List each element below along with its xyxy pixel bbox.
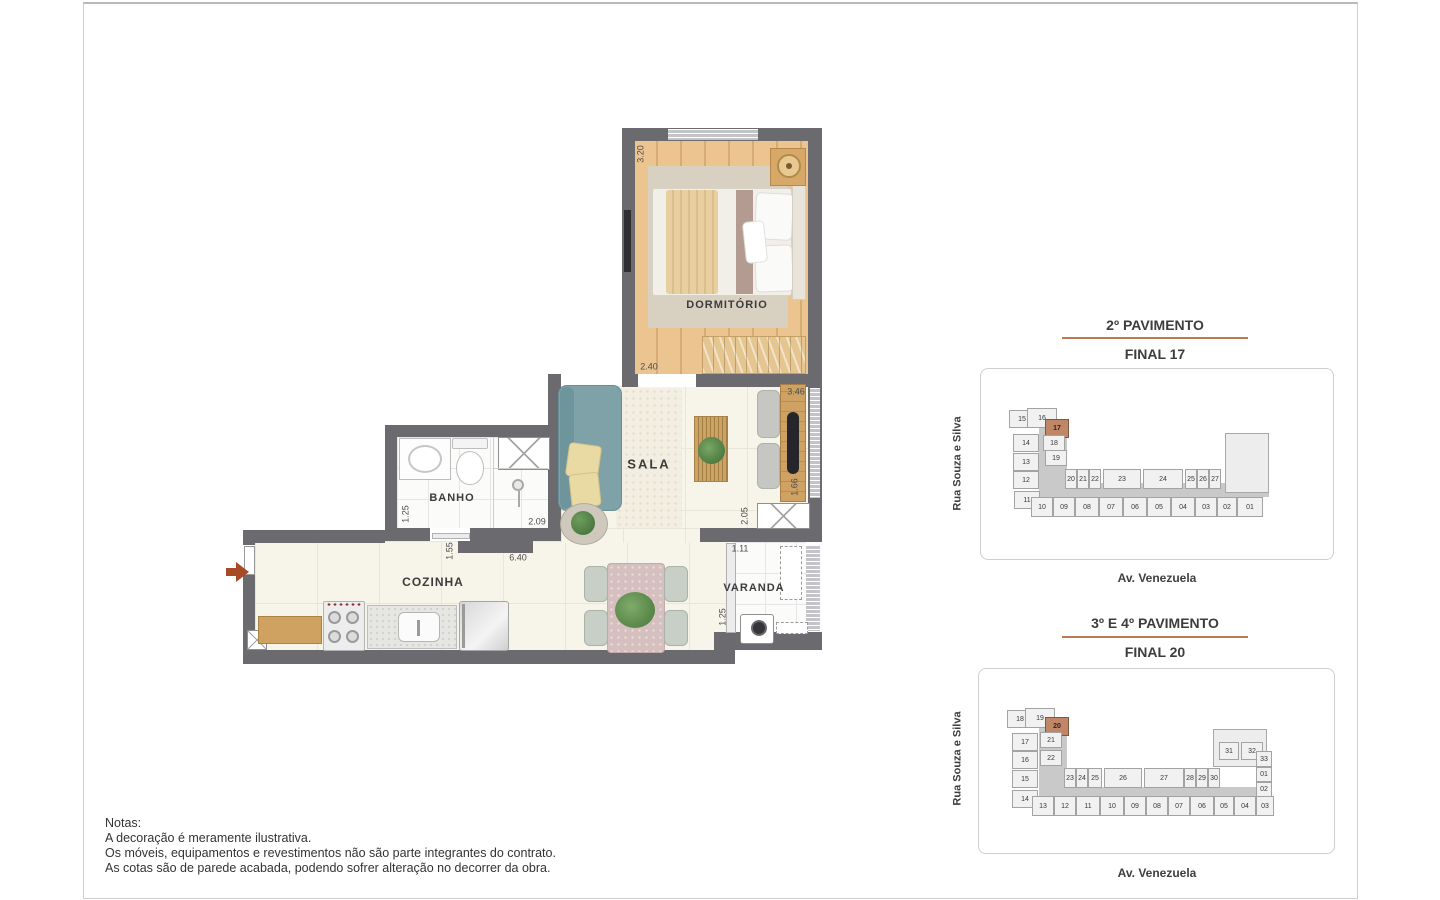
dim-cozinha-width: 6.40 bbox=[503, 553, 533, 564]
unit-cell-13: 13 bbox=[1032, 796, 1054, 816]
dining-chair bbox=[584, 566, 608, 602]
dim-sala-right-top: 3.46 bbox=[781, 387, 811, 398]
unit-cell-04: 04 bbox=[1171, 497, 1195, 517]
kitchen-bench bbox=[258, 616, 322, 644]
unit-cell-06: 06 bbox=[1190, 796, 1214, 816]
wall-kitchen-top bbox=[243, 530, 385, 543]
unit-cell-08: 08 bbox=[1075, 497, 1099, 517]
sala-right-window bbox=[810, 388, 820, 498]
stove-knobs bbox=[326, 602, 362, 607]
unit-cell-03: 03 bbox=[1195, 497, 1217, 517]
unit-cell-21: 21 bbox=[1077, 469, 1089, 489]
dim-banho-bottom: 2.09 bbox=[522, 517, 552, 528]
banho-divider bbox=[494, 468, 548, 469]
unit-cell-05: 05 bbox=[1214, 796, 1234, 816]
unit-cell-22: 22 bbox=[1089, 469, 1101, 489]
room-label-dormitorio: DORMITÓRIO bbox=[686, 299, 768, 311]
unit-cell-06: 06 bbox=[1123, 497, 1147, 517]
entrance-arrow-icon bbox=[224, 561, 250, 583]
unit-cell-17: 17 bbox=[1012, 733, 1038, 751]
street-label-rua-souza: Rua Souza e Silva bbox=[952, 699, 965, 819]
dim-dorm-left: 3.20 bbox=[636, 139, 647, 169]
plant-icon bbox=[571, 511, 595, 535]
shaft-banho bbox=[498, 437, 550, 470]
floor-cushion bbox=[757, 390, 780, 438]
lamp-center bbox=[786, 163, 792, 169]
unit-cell-07: 07 bbox=[1168, 796, 1190, 816]
building-footprint: 1819201721162215142324252627282930313233… bbox=[979, 669, 1334, 853]
wall-under-shower bbox=[458, 541, 533, 553]
unit-cell-16: 16 bbox=[1012, 751, 1038, 769]
dim-hall: 1.55 bbox=[445, 536, 456, 566]
headboard bbox=[792, 185, 806, 300]
unit-cell-23: 23 bbox=[1103, 469, 1141, 489]
unit-cell-13: 13 bbox=[1013, 453, 1039, 471]
room-label-varanda: VARANDA bbox=[723, 582, 784, 594]
unit-cell-11: 11 bbox=[1076, 796, 1100, 816]
shower-icon bbox=[512, 479, 524, 491]
room-label-banho: BANHO bbox=[429, 492, 474, 504]
dim-varanda-left: 1.25 bbox=[718, 602, 729, 632]
street-label-av-venezuela: Av. Venezuela bbox=[1057, 866, 1257, 880]
notes-line: Os móveis, equipamentos e revestimentos … bbox=[105, 846, 556, 861]
washer-door-icon bbox=[751, 620, 767, 636]
floor-plan-sheet: DORMITÓRIO SALA BANHO COZINHA VARANDA 3.… bbox=[0, 0, 1440, 900]
unit-cell-09: 09 bbox=[1124, 796, 1146, 816]
shower-arm bbox=[518, 491, 520, 507]
key-plan-final: FINAL 17 bbox=[1020, 346, 1290, 362]
unit-cell-20: 20 bbox=[1065, 469, 1077, 489]
street-label-av-venezuela: Av. Venezuela bbox=[1057, 571, 1257, 585]
notes-heading: Notas: bbox=[105, 816, 556, 831]
unit-cell-10: 10 bbox=[1100, 796, 1124, 816]
burner-icon bbox=[328, 630, 341, 643]
shaft-sala bbox=[757, 503, 810, 529]
dorm-window bbox=[668, 129, 758, 140]
wall-banho-top bbox=[385, 425, 561, 437]
toilet-tank bbox=[452, 438, 488, 449]
toilet-icon bbox=[456, 451, 484, 485]
faucet-icon bbox=[417, 620, 420, 636]
unit-cell-23: 23 bbox=[1064, 768, 1076, 788]
unit-cell-25: 25 bbox=[1088, 768, 1102, 788]
wall-banho-bottom bbox=[385, 528, 561, 541]
key-plan-title: 3º E 4º PAVIMENTO bbox=[1020, 615, 1290, 631]
unit-cell-29: 29 bbox=[1196, 768, 1208, 788]
fridge-handle bbox=[462, 604, 465, 648]
bed-cushion bbox=[742, 220, 768, 264]
plant-icon bbox=[615, 592, 655, 628]
unit-cell-30: 30 bbox=[1208, 768, 1220, 788]
unit-cell-04: 04 bbox=[1234, 796, 1256, 816]
unit-cell-21: 21 bbox=[1040, 732, 1062, 748]
unit-cell-12: 12 bbox=[1054, 796, 1076, 816]
unit-cell-26: 26 bbox=[1104, 768, 1142, 788]
key-plan-final: FINAL 20 bbox=[1020, 644, 1290, 660]
key-plan-box: 1819201721162215142324252627282930313233… bbox=[978, 668, 1335, 854]
key-plan-title: 2º PAVIMENTO bbox=[1020, 317, 1290, 333]
unit-cell-02: 02 bbox=[1256, 782, 1272, 797]
varanda-dashes bbox=[776, 622, 808, 634]
dining-chair bbox=[584, 610, 608, 646]
unit-cell-01: 01 bbox=[1237, 497, 1263, 517]
dining-chair bbox=[664, 610, 688, 646]
dorm-left-window bbox=[624, 210, 631, 272]
unit-cell-09: 09 bbox=[1053, 497, 1075, 517]
unit-cell-27: 27 bbox=[1144, 768, 1184, 788]
room-label-sala: SALA bbox=[627, 457, 670, 472]
burner-icon bbox=[328, 611, 341, 624]
floor-cushion bbox=[757, 443, 780, 489]
wall-banho-left bbox=[385, 425, 397, 540]
unit-cell-10: 10 bbox=[1031, 497, 1053, 517]
fridge bbox=[459, 601, 509, 651]
unit-cell-24: 24 bbox=[1143, 469, 1183, 489]
unit-cell-31: 31 bbox=[1219, 742, 1239, 760]
dim-sala-right-bottom: 2.05 bbox=[740, 501, 751, 531]
title-rule bbox=[1062, 337, 1248, 339]
unit-cell-12: 12 bbox=[1013, 471, 1039, 489]
unit-cell-14: 14 bbox=[1013, 434, 1039, 452]
dim-tv-wall: 1.66 bbox=[790, 472, 801, 502]
notes-line: A decoração é meramente ilustrativa. bbox=[105, 831, 556, 846]
unit-cell-03: 03 bbox=[1256, 796, 1274, 816]
wall-sala-varanda bbox=[700, 528, 822, 542]
unit-cell-33: 33 bbox=[1256, 751, 1272, 767]
plant-icon bbox=[698, 437, 725, 464]
unit-cell-01: 01 bbox=[1256, 767, 1272, 782]
dim-varanda-top: 1.11 bbox=[725, 544, 755, 555]
room-label-cozinha: COZINHA bbox=[402, 575, 464, 589]
banho-divider bbox=[493, 437, 494, 528]
unit-cell-08: 08 bbox=[1146, 796, 1168, 816]
unit-cell-05: 05 bbox=[1147, 497, 1171, 517]
unit-cell-15: 15 bbox=[1012, 770, 1038, 788]
building-footprint: 1516171418131912112021222324252627100908… bbox=[981, 369, 1333, 559]
unit-cell-07: 07 bbox=[1099, 497, 1123, 517]
stove bbox=[323, 601, 365, 651]
unit-cell-24: 24 bbox=[1076, 768, 1088, 788]
unit-cell-27: 27 bbox=[1209, 469, 1221, 489]
title-rule bbox=[1062, 636, 1248, 638]
unit-cell-28: 28 bbox=[1184, 768, 1196, 788]
burner-icon bbox=[346, 630, 359, 643]
unit-cell-25: 25 bbox=[1185, 469, 1197, 489]
unit-cell-26: 26 bbox=[1197, 469, 1209, 489]
dorm-door-opening bbox=[638, 374, 696, 387]
unit-cell-02: 02 bbox=[1217, 497, 1237, 517]
dim-banho-left: 1.25 bbox=[401, 499, 412, 529]
washbasin-icon bbox=[408, 445, 442, 473]
burner-icon bbox=[346, 611, 359, 624]
bed-blanket bbox=[666, 190, 718, 294]
notes-block: Notas: A decoração é meramente ilustrati… bbox=[105, 816, 556, 876]
unit-cell-18: 18 bbox=[1043, 435, 1065, 451]
key-plan-box: 1516171418131912112021222324252627100908… bbox=[980, 368, 1334, 560]
wardrobe bbox=[702, 336, 806, 374]
unit-cell-19: 19 bbox=[1045, 450, 1067, 466]
varanda-window bbox=[806, 545, 820, 631]
tower-block bbox=[1225, 433, 1269, 493]
street-label-rua-souza: Rua Souza e Silva bbox=[952, 404, 965, 524]
unit-cell-22: 22 bbox=[1040, 750, 1062, 766]
notes-line: As cotas são de parede acabada, podendo … bbox=[105, 861, 556, 876]
dining-chair bbox=[664, 566, 688, 602]
tv-icon bbox=[787, 412, 799, 474]
dim-dorm-bottom: 2.40 bbox=[634, 362, 664, 373]
